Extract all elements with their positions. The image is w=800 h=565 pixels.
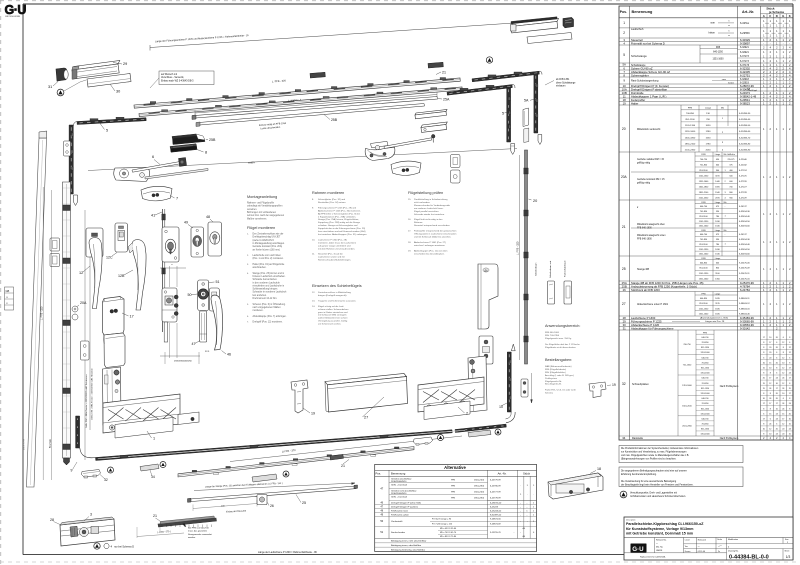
svg-text:17: 17: [776, 403, 778, 405]
svg-text:Betätigung innen, nicht absc: Betätigung innen, nicht abschließbar: [391, 540, 427, 543]
svg-text:640-700: 640-700: [702, 398, 709, 400]
svg-text:50.2 mm: 50.2 mm: [50, 439, 52, 448]
svg-text:Schiebebaum ent.: Schiebebaum ent.: [549, 260, 552, 278]
svg-text:-: -: [763, 42, 764, 45]
svg-text:640: 640: [716, 164, 720, 166]
svg-text:12: 12: [789, 347, 791, 349]
svg-text:1: 1: [763, 319, 765, 323]
svg-text:701-850: 701-850: [702, 423, 709, 425]
svg-text:1: 1: [789, 20, 791, 23]
svg-text:4: 4: [111, 545, 113, 549]
svg-text:6-32494-60: 6-32494-60: [739, 254, 750, 256]
svg-text:20: 20: [776, 347, 778, 349]
svg-text:1: 1: [789, 30, 791, 33]
svg-text:20: 20: [776, 362, 778, 364]
svg-text:FFB 640-1600: FFB 640-1600: [545, 332, 560, 334]
svg-text:12.: 12.: [312, 292, 315, 294]
svg-text:10: 10: [769, 434, 771, 436]
svg-text:ganz in Gleiter einstecken und: ganz in Gleiter einstecken und: [318, 311, 348, 314]
svg-text:6-29541: 6-29541: [740, 98, 750, 102]
svg-text:1351-1600: 1351-1600: [699, 314, 709, 316]
svg-text:RAB (Rahmenaußenbreite): RAB (Rahmenaußenbreite): [545, 365, 572, 368]
svg-text:9-38523: 9-38523: [740, 101, 750, 105]
svg-text:8: 8: [763, 393, 764, 395]
svg-text:Rahmen- und Flügelprofile: Rahmen- und Flügelprofile: [247, 202, 275, 205]
svg-text:einbauen: einbauen: [556, 86, 566, 88]
svg-text:anschrauben.: anschrauben.: [253, 266, 267, 269]
svg-text:21: 21: [153, 514, 157, 518]
svg-text:6-27224: 6-27224: [739, 170, 747, 172]
svg-text:430: 430: [716, 159, 720, 161]
svg-text:640-700: 640-700: [702, 357, 709, 359]
svg-text:Griffe + Dornmaß: Griffe + Dornmaß: [391, 496, 408, 499]
svg-text:20: 20: [776, 337, 778, 339]
svg-text:1: 1: [724, 170, 726, 172]
svg-text:Lehren bzw. nach den angegeben: Lehren bzw. nach den angegebenen: [247, 214, 285, 217]
svg-text:9-38542-1-49: 9-38542-1-49: [740, 94, 757, 98]
svg-text:1: 1: [763, 128, 765, 131]
svg-text:6: 6: [776, 352, 777, 354]
svg-text:900: 900: [729, 197, 732, 199]
svg-text:GB: GB: [6, 289, 10, 293]
svg-text:1190: 1190: [715, 175, 720, 177]
svg-text:2: 2: [770, 319, 772, 323]
svg-text:19: 19: [623, 101, 627, 105]
svg-text:Die Verantwortung für eine aus: Die Verantwortung für eine ausreichende …: [621, 480, 677, 483]
svg-text:Scheren (Pos. 6) in Öffnstellu: Scheren (Pos. 6) in Öffnstellung.: [253, 303, 287, 306]
svg-text:2: 2: [770, 51, 772, 54]
svg-text:6: 6: [776, 373, 777, 375]
svg-text:-80: -80: [522, 536, 526, 538]
svg-text:Getriebe konstant DM = 15: Getriebe konstant DM = 15: [637, 178, 665, 181]
svg-text:8: 8: [789, 383, 790, 385]
svg-text:11.: 11.: [312, 254, 315, 256]
svg-text:9-30142: 9-30142: [740, 326, 750, 330]
svg-text:2: 2: [770, 101, 772, 105]
svg-text:1: 1: [783, 213, 785, 216]
svg-text:4: 4: [724, 197, 726, 199]
svg-text:Montageanleitung: Montageanleitung: [247, 195, 277, 199]
svg-text:9-25476-06: 9-25476-06: [739, 262, 750, 264]
svg-text:20: 20: [769, 352, 771, 354]
svg-text:6-24784: 6-24784: [740, 288, 750, 292]
svg-text:1: 1: [623, 21, 625, 25]
svg-text:-: -: [725, 206, 726, 208]
svg-text:1: 1: [763, 84, 765, 88]
svg-text:FFB: FFB: [702, 258, 707, 260]
svg-text:Griffhöhe: Griffhöhe: [727, 153, 735, 156]
svg-text:Bestellangaben:: Bestellangaben:: [545, 358, 572, 362]
svg-text:1: 1: [783, 284, 785, 288]
svg-text:6-32494-30: 6-32494-30: [739, 113, 751, 115]
svg-text:Benennung: Benennung: [632, 10, 654, 14]
svg-text:Steuerteil entsprechend versch: Steuerteil entsprechend verschieben.: [414, 224, 451, 227]
svg-text:2: 2: [770, 281, 772, 285]
svg-text:8: 8: [763, 342, 764, 344]
svg-text:Parallelschiebe-Kippbeschlag C: Parallelschiebe-Kippbeschlag CLI-966/150…: [626, 522, 704, 526]
svg-text:6-24973: 6-24973: [740, 91, 750, 95]
svg-text:16.: 16.: [408, 219, 411, 221]
svg-text:Flügel montieren: Flügel montieren: [247, 226, 275, 230]
svg-text:Laufschiene setzen und mit: Laufschiene setzen und mit: [318, 256, 345, 259]
svg-text:1: 1: [763, 20, 765, 23]
svg-text:1: 1: [763, 288, 765, 292]
svg-text:4: 4: [770, 47, 772, 50]
svg-text:32: 32: [622, 382, 626, 386]
svg-text:1: 1: [783, 176, 785, 179]
svg-text:Einbau nach WZ 0-43643-DB-3: Einbau nach WZ 0-43643-DB-3: [161, 81, 194, 83]
svg-text:(Anwendungsbereich s. Bl.3): (Anwendungsbereich s. Bl.3): [700, 317, 728, 320]
svg-text:18.: 18.: [408, 242, 411, 244]
svg-text:6-29559: 6-29559: [740, 31, 750, 35]
svg-text:2: 2: [763, 94, 765, 98]
svg-text:1351-1600: 1351-1600: [682, 385, 692, 387]
svg-text:6: 6: [763, 357, 764, 359]
svg-text:20: 20: [769, 357, 771, 359]
svg-text:L. FFB - 320: L. FFB - 320: [516, 241, 519, 255]
svg-text:1440: 1440: [715, 181, 720, 183]
svg-text:1: 1: [783, 38, 785, 42]
svg-text:Farbe EV1, UC3, UC oder weiß: Farbe EV1, UC3, UC oder weiß: [545, 389, 576, 392]
svg-text:12: 12: [782, 342, 784, 344]
svg-text:15: 15: [776, 408, 778, 410]
svg-text:2: 2: [789, 128, 791, 131]
svg-text:Länge: Länge: [715, 230, 721, 232]
svg-text:Flügelgewicht-Nr.: Flügelgewicht-Nr.: [545, 380, 562, 383]
svg-text:Abdeckkappen (Pos. 11) von obe: Abdeckkappen (Pos. 11) von oben: [414, 249, 448, 252]
svg-text:24: 24: [789, 429, 791, 431]
svg-text:FFH 700-2350: FFH 700-2350: [545, 335, 560, 337]
svg-text:20: 20: [763, 378, 765, 380]
svg-text:8: 8: [205, 151, 207, 155]
svg-text:2: 2: [770, 323, 772, 327]
svg-text:2: 2: [770, 84, 772, 88]
svg-text:8: 8: [763, 434, 764, 436]
svg-text:1: 1: [763, 213, 765, 216]
svg-text:20: 20: [776, 429, 778, 431]
svg-text:Drehgriff Dirigent F (ohne Sti: Drehgriff Dirigent F (ohne Stift): [391, 501, 421, 504]
svg-text:15: 15: [789, 423, 791, 425]
svg-text:FFB: FFB: [716, 47, 721, 49]
svg-text:1601-2100: 1601-2100: [474, 492, 485, 494]
svg-text:schieben. Stange mit Scherengl: schieben. Stange mit Scherengleiter und: [318, 224, 358, 227]
svg-text:1: 1: [770, 35, 772, 38]
svg-text:19: 19: [311, 412, 315, 416]
svg-text:Flügelgewicht max. 150 Kg: Flügelgewicht max. 150 Kg: [545, 337, 572, 340]
svg-text:640-700: 640-700: [702, 418, 709, 420]
svg-text:1: 1: [783, 281, 785, 285]
svg-text:Länge: Länge: [705, 108, 712, 110]
svg-text:einschieben und Laufschuhe in: einschieben und Laufschuhe in: [253, 285, 285, 287]
svg-text:851-1100: 851-1100: [699, 244, 708, 246]
svg-text:Betätigung beidseitig, absch: Betätigung beidseitig, abschließbar: [391, 548, 425, 551]
svg-text:47: 47: [192, 342, 196, 346]
svg-text:A: A: [763, 14, 765, 18]
svg-text:8: 8: [789, 362, 790, 364]
svg-text:und max. Flügelgewichten sowie: und max. Flügelgewichten sowie zu Materi…: [621, 454, 689, 457]
svg-text:2: 2: [770, 303, 772, 306]
svg-text:10: 10: [763, 429, 765, 431]
svg-text:1101-1350: 1101-1350: [685, 125, 696, 127]
svg-text:1: 1: [763, 268, 765, 271]
svg-text:851-1350: 851-1350: [701, 408, 709, 410]
svg-text:PZ-Rosette außen: PZ-Rosette außen: [391, 513, 410, 516]
svg-text:Länge: Länge: [715, 293, 721, 295]
svg-text:50: 50: [188, 293, 192, 297]
svg-text:fest anziehen. Abdeckkappen (P: fest anziehen. Abdeckkappen (Pos. 31) an…: [318, 233, 367, 236]
svg-text:Drehgriff (Pos. 12) montieren.: Drehgriff (Pos. 12) montieren.: [253, 321, 284, 324]
svg-text:2: 2: [770, 288, 772, 292]
svg-text:Halter (Pos. 19) auf Flügelmit: Halter (Pos. 19) auf Flügelmitte: [253, 263, 286, 266]
svg-text:2: 2: [789, 303, 791, 306]
svg-text:851-1100: 851-1100: [699, 268, 708, 270]
svg-text:17: 17: [769, 342, 771, 344]
svg-text:Abdeckschiene P 1226 (Pos. 30): Abdeckschiene P 1226 (Pos. 30) montieren…: [318, 209, 361, 212]
svg-text:1: 1: [533, 502, 535, 504]
svg-text:2: 2: [783, 70, 785, 74]
svg-text:1: 1: [776, 284, 778, 288]
svg-text:1101-1350: 1101-1350: [699, 175, 709, 177]
svg-text:24: 24: [776, 418, 778, 420]
svg-text:Die Produktinformationen der S: Die Produktinformationen der Systemherst…: [621, 447, 699, 450]
svg-text:6-22040: 6-22040: [739, 159, 747, 161]
svg-text:1: 1: [776, 303, 778, 306]
svg-text:Zentralverschluss in Mittelste: Zentralverschluss in Mittelstellung: [318, 291, 352, 294]
svg-text:1: 1: [776, 213, 778, 216]
svg-text:10: 10: [776, 383, 778, 385]
svg-text:2: 2: [783, 66, 785, 70]
svg-text:1: 1: [783, 91, 785, 95]
svg-text:vorn: vorn: [710, 22, 715, 25]
svg-text:fest anziehen.: fest anziehen.: [253, 294, 268, 297]
svg-text:640-700: 640-700: [700, 206, 708, 208]
svg-text:1: 1: [763, 101, 765, 105]
svg-text:8: 8: [789, 337, 790, 339]
svg-text:530: 530: [716, 211, 720, 213]
svg-text:Mat. No.: Mat. No.: [656, 546, 664, 549]
svg-text:versehen.: versehen.: [247, 208, 257, 211]
svg-text:02.11.06: 02.11.06: [698, 551, 705, 553]
svg-text:6: 6: [776, 423, 777, 425]
svg-text:34: 34: [622, 436, 626, 440]
svg-text:Stützbock ab FFB 1200: Stützbock ab FFB 1200: [631, 288, 660, 292]
svg-text:Mö: Mö: [721, 108, 725, 110]
svg-text:Flügelbreite nicht überschreit: Flügelbreite nicht überschreiten.: [545, 346, 577, 349]
svg-text:unbedingt mit Verstärkungsprof: unbedingt mit Verstärkungsprofilen: [247, 205, 283, 208]
svg-text:Pos.: Pos.: [620, 10, 627, 14]
svg-text:1100: 1100: [715, 273, 720, 275]
svg-text:1: 1: [776, 84, 778, 88]
svg-text:17: 17: [789, 367, 791, 369]
svg-text:Schema: Schema: [545, 393, 554, 395]
svg-text:1: 1: [763, 284, 765, 288]
svg-text:851-1350: 851-1350: [701, 429, 709, 431]
svg-text:2: 2: [763, 70, 765, 74]
svg-text:( - FFB - 570 ): ( - FFB - 570 ): [157, 531, 171, 534]
svg-text:einschieben bis diese Anspken.: einschieben bis diese Anspken.: [414, 252, 445, 255]
svg-text:2: 2: [722, 132, 724, 134]
svg-text:6-325xx: 6-325xx: [740, 21, 750, 25]
svg-text:1: 1: [789, 35, 791, 38]
svg-text:1: 1: [770, 20, 772, 23]
svg-text:2: 2: [789, 101, 791, 105]
svg-text:24: 24: [776, 378, 778, 380]
svg-text:1: 1: [533, 510, 535, 512]
svg-text:2: 2: [789, 51, 791, 54]
svg-text:FFB: FFB: [451, 486, 455, 488]
svg-text:2: 2: [770, 213, 772, 216]
svg-text:600: 600: [716, 262, 720, 264]
svg-text:2: 2: [770, 176, 772, 179]
svg-text:8: 8: [789, 398, 790, 400]
svg-text:Senkschraube: Senkschraube: [391, 531, 406, 534]
svg-text:6-27227: 6-27227: [739, 186, 747, 188]
svg-text:1940: 1940: [715, 192, 720, 194]
svg-text:Zs: Zs: [718, 551, 720, 553]
svg-text:41: 41: [151, 214, 155, 218]
svg-text:51: 51: [216, 280, 220, 284]
svg-text:21: 21: [622, 225, 626, 229]
svg-text:15: 15: [789, 388, 791, 390]
svg-text:Schubstange: Schubstange: [631, 54, 647, 58]
svg-text:780: 780: [716, 216, 720, 218]
svg-text:▾: ▾: [637, 206, 639, 209]
svg-text:8: 8: [770, 393, 771, 395]
svg-text:1: 1: [783, 98, 785, 102]
svg-text:2: 2: [770, 284, 772, 288]
svg-text:9-25476-99: 9-25476-99: [740, 281, 754, 285]
svg-text:Schraube wieder fest anziehen.: Schraube wieder fest anziehen.: [414, 213, 445, 216]
svg-text:700: 700: [729, 186, 732, 188]
svg-text:25A: 25A: [443, 98, 450, 102]
svg-text:24: 24: [782, 378, 784, 380]
svg-text:6: 6: [789, 357, 790, 359]
svg-text:1351-1600: 1351-1600: [699, 181, 709, 183]
svg-text:Steuerteil (Pos. 3) auf die: Steuerteil (Pos. 3) auf die: [318, 253, 343, 256]
svg-text:Abdeckschiene unten P 1601: Abdeckschiene unten P 1601: [637, 303, 669, 306]
svg-text:Laufschiene P 1300: Laufschiene P 1300: [631, 316, 656, 320]
svg-text:1: 1: [527, 485, 529, 487]
svg-text:Drehgriff Dirigent F (außen): Drehgriff Dirigent F (außen): [391, 505, 418, 508]
svg-text:751-850: 751-850: [700, 164, 708, 166]
svg-text:1351-1600: 1351-1600: [685, 131, 696, 133]
svg-text:G·U: G·U: [632, 546, 644, 553]
svg-text:1: 1: [783, 241, 785, 244]
svg-text:1: 1: [533, 485, 535, 487]
svg-text:-: -: [520, 510, 521, 512]
svg-text:48: 48: [381, 510, 384, 512]
svg-text:2: 2: [783, 47, 785, 50]
svg-text:850: 850: [716, 268, 720, 270]
svg-text:1: 1: [783, 268, 785, 271]
svg-text:FFB: FFB: [702, 230, 707, 232]
svg-text:2101-2350: 2101-2350: [699, 197, 709, 199]
svg-text:9-15255-70: 9-15255-70: [490, 532, 501, 534]
svg-text:17: 17: [130, 315, 134, 319]
svg-text:10: 10: [782, 362, 784, 364]
svg-text:1530: 1530: [715, 226, 720, 228]
svg-text:20: 20: [782, 434, 784, 436]
svg-text:6-32494-60: 6-32494-60: [739, 226, 750, 228]
svg-text:M5 x 45 FO 51-60: M5 x 45 FO 51-60: [440, 528, 457, 530]
svg-text:17: 17: [789, 393, 791, 395]
svg-text:Abdeckkappe für Führungsschien: Abdeckkappe für Führungsschiene: [631, 326, 674, 330]
svg-text:2: 2: [776, 47, 778, 50]
svg-text:9-32497-02: 9-32497-02: [490, 514, 502, 516]
svg-text:8.: 8.: [312, 199, 314, 201]
svg-text:2: 2: [776, 94, 778, 98]
svg-text:Getriebe variabel DM = 15: Getriebe variabel DM = 15: [637, 158, 665, 161]
svg-text:1: 1: [776, 323, 778, 327]
svg-text:25B: 25B: [209, 138, 216, 142]
svg-text:Mittelstück waagrecht unten: Mittelstück waagrecht unten: [637, 234, 666, 237]
svg-text:-60: -60: [522, 528, 526, 530]
svg-text:der Beschlagteile liegt beim H: der Beschlagteile liegt beim Hersteller …: [621, 484, 694, 487]
svg-text:-: -: [527, 494, 528, 496]
svg-text:375: 375: [729, 164, 732, 166]
svg-text:1: 1: [763, 38, 765, 42]
svg-text:Laufschuhe vorn und hinten: Laufschuhe vorn und hinten: [253, 254, 282, 257]
svg-text:6-22751: 6-22751: [740, 73, 750, 77]
svg-text:9-30565-99: 9-30565-99: [740, 319, 754, 323]
svg-text:1350: 1350: [715, 278, 720, 280]
svg-text:1: 1: [724, 215, 726, 217]
svg-text:Abdeckkappen 1 Paar ( L/R ): Abdeckkappen 1 Paar ( L/R ): [631, 94, 667, 98]
svg-text:1: 1: [763, 323, 765, 327]
svg-text:1: 1: [783, 35, 785, 38]
svg-text:ab FFB 1351: ab FFB 1351: [556, 79, 570, 81]
svg-text:Abdeckschiene P 1601 (Pos. 27): Abdeckschiene P 1601 (Pos. 27): [414, 241, 446, 244]
svg-text:20A: 20A: [80, 301, 87, 305]
svg-text:mit Schlüssel SW4 verriegeln: mit Schlüssel SW4 verriegeln: [318, 314, 347, 317]
svg-text:800: 800: [729, 192, 732, 194]
svg-text:FO 71-80 Länge = 110: FO 71-80 Länge = 110: [432, 523, 453, 525]
svg-text:1: 1: [520, 494, 522, 496]
svg-text:4: 4: [789, 66, 791, 70]
svg-text:zur Konstruktion und Verarbeit: zur Konstruktion und Verarbeitung, zu ma…: [621, 451, 687, 454]
svg-text:montieren.: montieren.: [253, 309, 264, 312]
svg-text:Art.-Nr.: Art.-Nr.: [498, 472, 507, 476]
svg-text:1351-1600: 1351-1600: [700, 434, 709, 436]
svg-text:19.: 19.: [408, 250, 411, 252]
svg-text:Size: Size: [785, 539, 789, 541]
svg-text:6-22042: 6-22042: [739, 164, 747, 166]
svg-text:1601-2100: 1601-2100: [474, 480, 485, 482]
svg-text:Rahmen:: Rahmen:: [414, 222, 423, 224]
svg-text:1690: 1690: [715, 186, 720, 188]
svg-text:6-25777-99: 6-25777-99: [490, 492, 501, 494]
svg-text:1601-2100: 1601-2100: [682, 405, 692, 407]
svg-text:werden: werden: [188, 536, 196, 539]
svg-text:20: 20: [533, 199, 537, 203]
svg-text:1101-1350: 1101-1350: [699, 273, 709, 275]
svg-text:9-26874-56: 9-26874-56: [490, 519, 501, 521]
svg-text:2: 2: [789, 316, 791, 320]
svg-text:46: 46: [227, 353, 231, 357]
svg-text:1351-1600: 1351-1600: [700, 373, 709, 375]
svg-text:10: 10: [769, 337, 771, 339]
svg-text:Längen wie Pos. 28: Längen wie Pos. 28: [705, 321, 725, 323]
svg-text:-: -: [533, 494, 534, 496]
svg-text:Scherengleiter: Scherengleiter: [631, 73, 649, 77]
svg-text:6-32494-40: 6-32494-40: [739, 244, 750, 246]
svg-text:Mittelstück senkrecht: Mittelstück senkrecht: [637, 128, 661, 131]
svg-text:Var.: Var.: [685, 545, 689, 548]
svg-text:25: 25: [622, 267, 626, 271]
svg-text:10: 10: [763, 362, 765, 364]
svg-text:640-850: 640-850: [700, 262, 708, 264]
svg-text:Ab FFB 1351: 2 Scherengleiter: Ab FFB 1351: 2 Scherengleiter (Pos. 8) m…: [318, 212, 360, 215]
